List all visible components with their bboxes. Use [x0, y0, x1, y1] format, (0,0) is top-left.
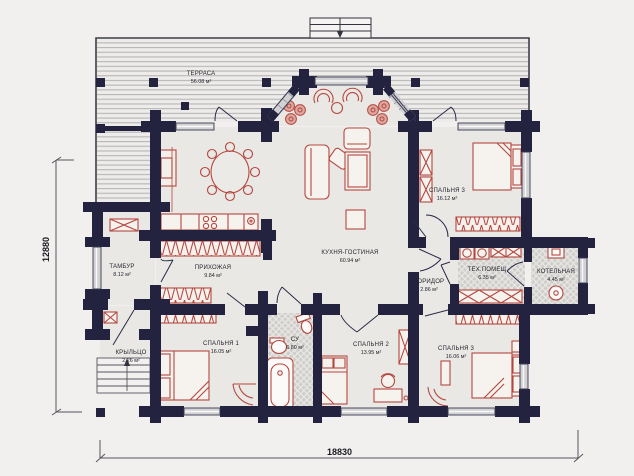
svg-text:СУ: СУ [291, 337, 299, 343]
svg-text:16.06 м²: 16.06 м² [446, 354, 467, 360]
svg-text:СПАЛЬНЯ 1: СПАЛЬНЯ 1 [203, 341, 240, 347]
svg-text:СПАЛЬНЯ 2: СПАЛЬНЯ 2 [353, 342, 390, 348]
svg-text:60.94 м²: 60.94 м² [340, 258, 361, 264]
svg-text:СПАЛЬНЯ 3: СПАЛЬНЯ 3 [429, 188, 466, 194]
svg-text:КОРИДОР: КОРИДОР [414, 279, 445, 285]
svg-text:КОТЕЛЬНАЯ: КОТЕЛЬНАЯ [537, 269, 575, 275]
svg-text:6.35 м²: 6.35 м² [478, 275, 496, 281]
svg-text:2.86 м²: 2.86 м² [420, 287, 438, 293]
svg-text:ТЕХ.ПОМЕЩ: ТЕХ.ПОМЕЩ [468, 267, 507, 273]
svg-text:16.05 м²: 16.05 м² [211, 349, 232, 355]
svg-text:СПАЛЬНЯ 3: СПАЛЬНЯ 3 [438, 346, 475, 352]
svg-text:ТЕРРАСА: ТЕРРАСА [187, 71, 216, 77]
svg-text:2.26 м²: 2.26 м² [122, 358, 140, 364]
svg-text:18830: 18830 [327, 447, 352, 457]
svg-text:8.12 м²: 8.12 м² [113, 272, 131, 278]
svg-text:4.45 м²: 4.45 м² [547, 277, 565, 283]
svg-text:6.80 м²: 6.80 м² [286, 345, 304, 351]
svg-text:ПРИХОЖАЯ: ПРИХОЖАЯ [195, 265, 231, 271]
svg-text:12880: 12880 [41, 237, 51, 262]
svg-text:КУХНЯ-ГОСТИНАЯ: КУХНЯ-ГОСТИНАЯ [321, 250, 378, 256]
svg-text:56.08 м²: 56.08 м² [191, 79, 212, 85]
svg-text:9.84 м²: 9.84 м² [204, 273, 222, 279]
svg-text:13.95 м²: 13.95 м² [361, 350, 382, 356]
svg-text:ТАМБУР: ТАМБУР [109, 264, 134, 270]
svg-text:16.12 м²: 16.12 м² [437, 196, 458, 202]
svg-text:КРЫЛЬЦО: КРЫЛЬЦО [115, 350, 146, 356]
